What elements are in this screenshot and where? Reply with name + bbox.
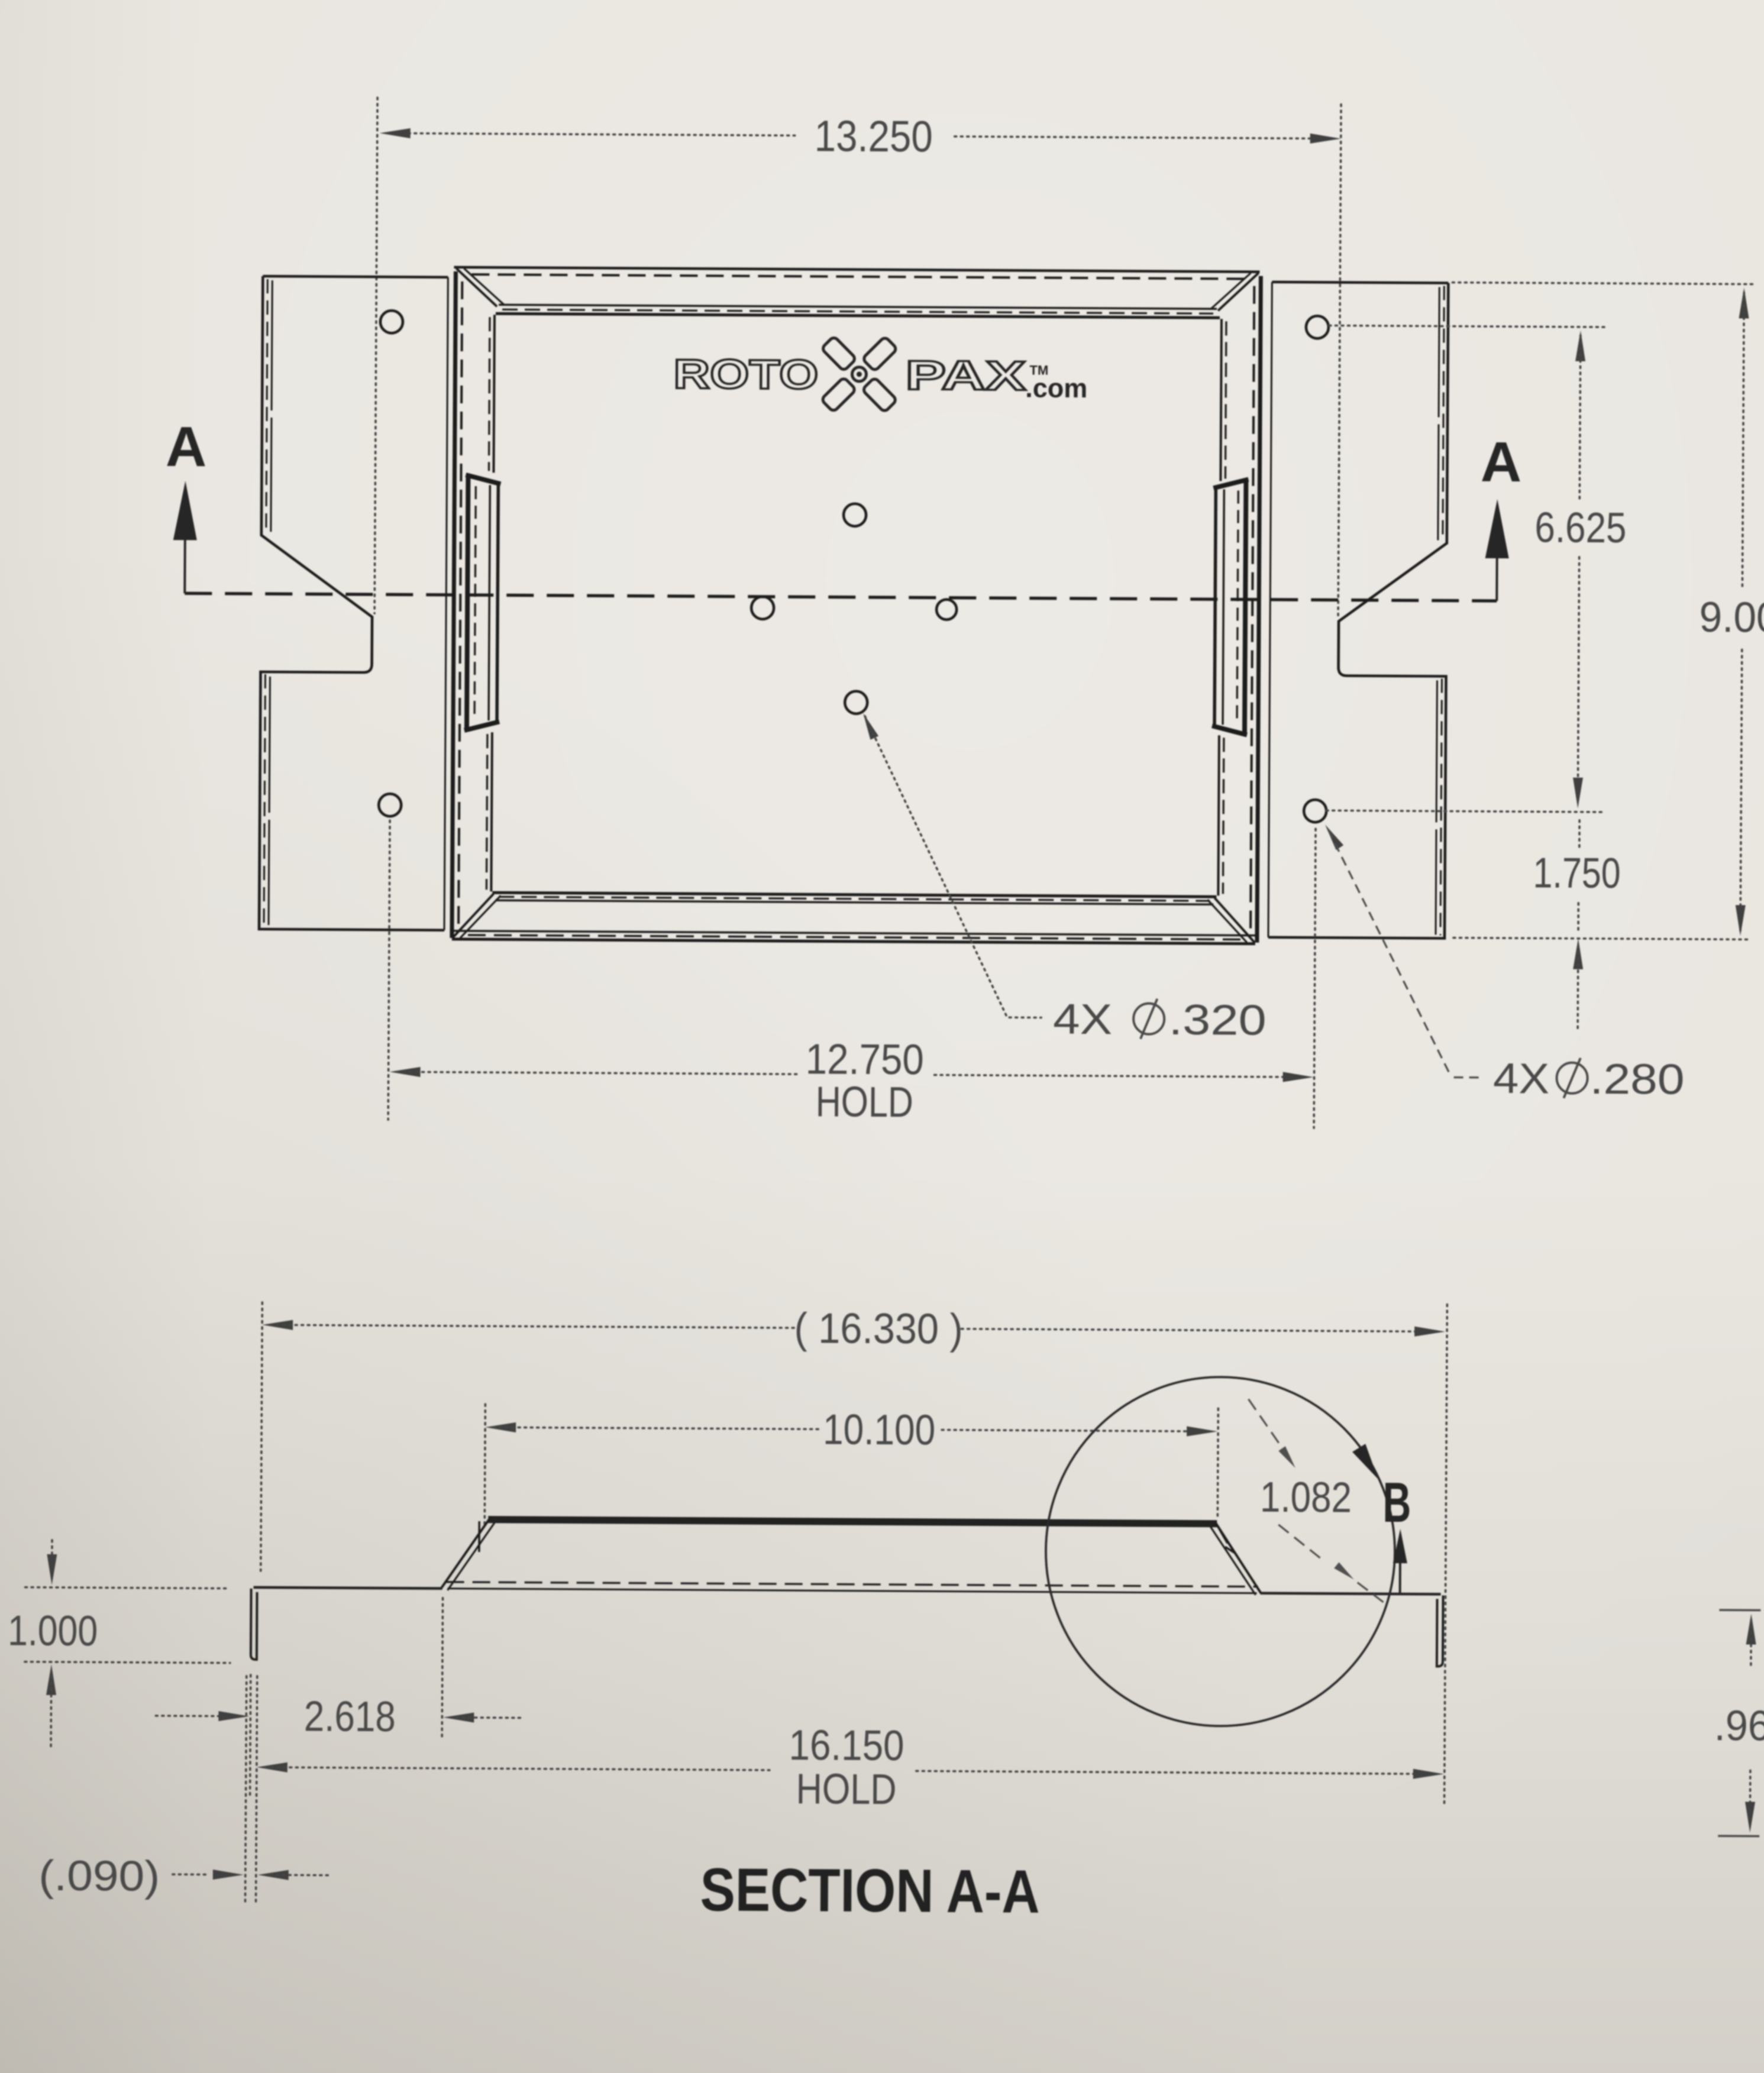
svg-text:HOLD: HOLD <box>796 1765 896 1813</box>
svg-text:ROTO: ROTO <box>673 351 818 397</box>
svg-text:.com: .com <box>1025 373 1087 403</box>
svg-text:9.00: 9.00 <box>1699 594 1764 642</box>
svg-text:12.750: 12.750 <box>806 1036 924 1084</box>
svg-text:4X: 4X <box>1053 996 1112 1044</box>
svg-text:1.082: 1.082 <box>1260 1474 1352 1522</box>
svg-text:HOLD: HOLD <box>816 1078 913 1126</box>
svg-text:.280: .280 <box>1589 1056 1684 1104</box>
svg-text:.320: .320 <box>1168 997 1266 1044</box>
svg-text:4X: 4X <box>1493 1055 1549 1103</box>
svg-text:A: A <box>166 415 207 478</box>
svg-text:1.750: 1.750 <box>1533 849 1620 897</box>
svg-text:2.618: 2.618 <box>304 1693 396 1741</box>
svg-text:13.250: 13.250 <box>815 111 933 161</box>
svg-text:10.100: 10.100 <box>823 1406 935 1454</box>
svg-text:(.090): (.090) <box>38 1852 160 1900</box>
svg-text:16.150: 16.150 <box>789 1722 904 1770</box>
svg-text:A: A <box>1481 431 1522 494</box>
svg-text:B: B <box>1382 1471 1411 1534</box>
svg-text:.96: .96 <box>1714 1702 1764 1750</box>
svg-text:PAX: PAX <box>905 352 1026 399</box>
svg-text:6.625: 6.625 <box>1534 504 1626 552</box>
svg-text:SECTION A-A: SECTION A-A <box>700 1855 1040 1925</box>
svg-text:( 16.330 ): ( 16.330 ) <box>794 1305 962 1353</box>
svg-text:1.000: 1.000 <box>8 1608 98 1655</box>
